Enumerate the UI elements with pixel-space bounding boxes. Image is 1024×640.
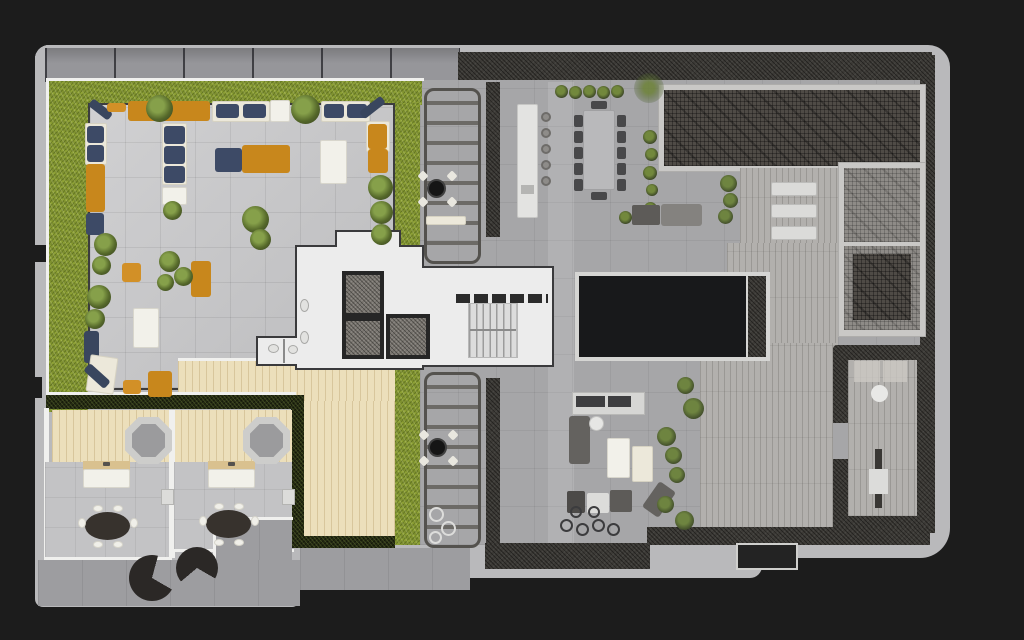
lounge-planter <box>370 201 393 224</box>
lounge-cushion <box>368 149 388 173</box>
treatment-shelf <box>883 361 907 382</box>
daybed <box>208 469 255 488</box>
pergola-planter <box>486 82 500 237</box>
grass-mid-lower <box>395 362 420 545</box>
planter-pot <box>583 85 596 98</box>
bicycle <box>570 506 582 518</box>
slab-notch <box>28 377 42 398</box>
planter-pot <box>619 211 632 224</box>
sideboard-inset <box>576 396 605 407</box>
pool-water <box>664 90 920 166</box>
dining-chair <box>617 147 626 159</box>
fire-pit <box>427 179 446 198</box>
treatment-room-door <box>833 423 848 459</box>
lounge-table <box>320 140 347 184</box>
cafe-table <box>441 521 456 536</box>
sofa-seat <box>610 490 632 512</box>
lounger <box>632 205 660 225</box>
dining-table <box>583 110 615 190</box>
skylight-planter <box>748 276 766 357</box>
floor-plan-rendering <box>0 0 1024 640</box>
lounge-planter <box>163 201 182 220</box>
tree <box>634 73 664 103</box>
lounge-cushion <box>164 146 185 164</box>
coffee-table <box>607 438 630 478</box>
bar-stool <box>541 160 551 170</box>
louvre-wall <box>456 294 548 303</box>
bicycle <box>576 523 589 536</box>
wood-floor-main <box>303 401 395 537</box>
patio-table <box>206 510 251 538</box>
planter-pot <box>645 148 658 161</box>
sunbed <box>771 226 817 240</box>
dining-chair <box>617 115 626 127</box>
hedge-units-top <box>46 395 293 409</box>
elevator-shaft <box>386 314 430 359</box>
wc-fixture <box>288 345 298 354</box>
spiral-stair <box>176 547 218 589</box>
shrub <box>677 377 694 394</box>
dining-chair <box>591 192 607 200</box>
sunbed <box>771 204 817 218</box>
hedge-wood-bottom <box>291 536 395 548</box>
lounge-planter <box>87 285 111 309</box>
lounge-planter <box>368 175 393 200</box>
planter-pot <box>597 86 610 99</box>
lounge-cushion <box>191 261 211 297</box>
lounge-cushion <box>243 104 266 118</box>
dining-chair <box>617 131 626 143</box>
wading-deck-mosaic <box>844 168 920 242</box>
patio-table <box>85 512 130 540</box>
lounge-daybed <box>242 145 290 173</box>
patio-chair <box>113 505 123 512</box>
planter-pot <box>643 130 657 144</box>
wc-fixture <box>300 299 309 312</box>
lounge-table <box>270 100 290 122</box>
patio-chair <box>93 541 103 548</box>
lounge-cushion <box>216 104 239 118</box>
planter-pot <box>555 85 568 98</box>
dining-chair <box>574 115 583 127</box>
hot-tub-water <box>132 424 165 457</box>
daybed-pillow <box>228 462 235 466</box>
bicycle <box>560 519 573 532</box>
wc-fixture <box>268 344 279 353</box>
bicycle <box>592 519 605 532</box>
planter-box <box>736 543 798 570</box>
massage-towel <box>869 469 888 494</box>
bar-stool <box>541 128 551 138</box>
pergola-planter <box>486 378 500 544</box>
shrub <box>665 447 682 464</box>
fire-pit <box>428 438 447 457</box>
lounge-planter <box>291 95 320 124</box>
patio-chair <box>199 516 207 526</box>
elevator-shaft <box>342 271 384 317</box>
lounge-cushion <box>324 104 344 118</box>
planter-pot <box>611 85 624 98</box>
shrub <box>718 209 733 224</box>
shrub <box>720 175 737 192</box>
wall-partition <box>283 339 285 363</box>
lounge-cushion <box>87 145 104 162</box>
daybed-pillow <box>103 462 110 466</box>
garden-edge-line <box>46 78 424 81</box>
hedge-bottom <box>485 543 650 569</box>
dining-chair <box>574 163 583 175</box>
lounge-cushion <box>164 166 185 183</box>
patio-chair <box>78 518 86 528</box>
lounge-pouf <box>107 103 126 112</box>
daybed <box>83 469 130 488</box>
bar-stool <box>541 112 551 122</box>
dining-chair <box>617 163 626 175</box>
ac-unit <box>161 489 174 505</box>
cafe-table <box>429 531 442 544</box>
sunbed <box>771 182 817 196</box>
lounge-pouf <box>122 263 141 282</box>
lounge-planter <box>85 309 105 329</box>
lounge-pouf <box>123 380 141 394</box>
grass-left <box>48 80 88 412</box>
parapet-band <box>45 48 460 82</box>
chaise <box>569 416 590 464</box>
lounge-cushion <box>368 124 387 149</box>
side-table <box>589 416 604 431</box>
bicycle <box>588 506 600 518</box>
lounge-planter <box>174 267 193 286</box>
spiral-stair <box>129 555 175 601</box>
skylight-glass <box>579 276 746 357</box>
shrub <box>657 427 676 446</box>
planting-band-top <box>458 52 932 83</box>
lounge-cushion <box>87 126 104 143</box>
pergola-bench <box>426 216 466 225</box>
bar-sink <box>521 185 534 194</box>
shrub <box>683 398 704 419</box>
lounge-planter <box>157 274 174 291</box>
patio-chair <box>234 539 244 546</box>
cafe-table <box>429 507 444 522</box>
shrub <box>675 511 694 530</box>
wc-fixture <box>300 331 309 344</box>
dining-chair <box>574 179 583 191</box>
lounge-planter <box>146 95 173 122</box>
lounge-cushion <box>148 371 172 397</box>
lounge-cushion <box>86 213 104 235</box>
bar-stool <box>541 144 551 154</box>
patio-chair <box>214 503 224 510</box>
hedge-wood-left <box>291 395 304 548</box>
gray-deck <box>700 343 838 530</box>
patio-chair <box>93 505 103 512</box>
shrub <box>669 467 685 483</box>
treatment-stool <box>871 385 888 402</box>
ac-unit <box>282 489 295 505</box>
patio-chair <box>214 539 224 546</box>
lounge-table <box>133 308 159 348</box>
dining-chair <box>574 131 583 143</box>
patio-chair <box>113 541 123 548</box>
patio-chair <box>234 503 244 510</box>
lounge-cushion <box>86 164 105 212</box>
dining-chair <box>591 101 607 109</box>
shrub <box>657 496 674 513</box>
lounger <box>661 204 702 226</box>
sideboard-inset <box>608 396 631 407</box>
planter-pot <box>646 184 658 196</box>
dining-chair <box>617 179 626 191</box>
lounge-planter <box>250 229 271 250</box>
lounge-planter <box>92 256 111 275</box>
planter-pot <box>643 166 657 180</box>
stair-rail <box>470 329 516 331</box>
patio-chair <box>251 516 259 526</box>
treatment-shelf <box>854 361 880 382</box>
walkway <box>300 548 470 590</box>
spa-water <box>853 254 911 320</box>
bench <box>632 446 653 482</box>
slab-notch <box>28 245 48 262</box>
shrub <box>723 193 738 208</box>
lounge-planter <box>94 233 117 256</box>
planter-pot <box>569 86 582 99</box>
lounge-planter <box>371 224 392 245</box>
bar-stool <box>541 176 551 186</box>
hot-tub-water <box>250 424 283 457</box>
lounge-cushion <box>164 126 185 144</box>
lounge-daybed <box>215 148 242 172</box>
patio-chair <box>130 518 138 528</box>
dining-chair <box>574 147 583 159</box>
bar-counter <box>517 104 538 218</box>
bicycle <box>607 523 620 536</box>
elevator-shaft <box>342 317 384 359</box>
garden-edge-line <box>46 78 49 414</box>
